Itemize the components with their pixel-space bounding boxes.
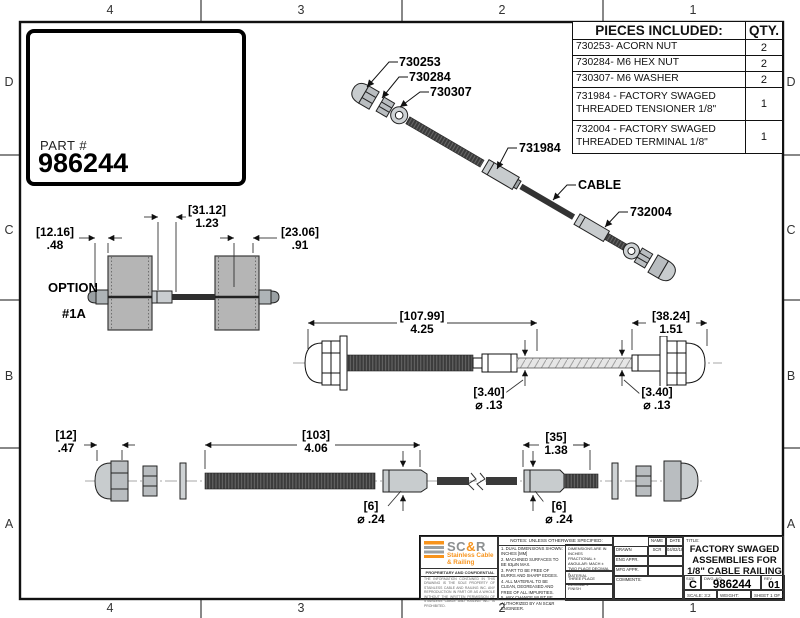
zone-right-b: B [787, 369, 795, 383]
zone-left-a: A [5, 517, 13, 531]
mfg-appr-label: MFG APPR. [614, 566, 648, 576]
note-item: 5. ANY CHANGE MUST BE AUTHORIZED BY AN S… [501, 595, 563, 611]
zone-bottom-3: 3 [298, 601, 305, 615]
finish-label: FINISH [566, 585, 613, 592]
mfg-appr-value [648, 566, 684, 576]
pieces-included-table: PIECES INCLUDED: QTY. 730253- ACORN NUT … [572, 21, 783, 154]
tolerance-line: DIMENSIONS ARE IN INCHES [568, 546, 611, 556]
callout-tensioner: 731984 [519, 141, 561, 155]
callout-washer: 730307 [430, 85, 472, 99]
zone-top-4: 4 [107, 3, 114, 17]
row-desc: 730307- M6 WASHER [573, 72, 746, 88]
sheet-cell: SHEET 1 OF 1 [751, 590, 785, 601]
row-qty: 2 [745, 40, 782, 56]
table-row: 730307- M6 WASHER 2 [573, 72, 783, 88]
comments-cell: COMMENTS: [614, 576, 684, 601]
notes-list: 1. DUAL DIMENSIONS SHOWN: INCHES [MM] 2.… [501, 546, 563, 611]
zone-right-d: D [786, 75, 795, 89]
row-desc: 731984 - FACTORY SWAGED THREADED TENSION… [573, 88, 746, 121]
part-number-value: 986244 [38, 148, 128, 179]
bottom-exploded-view [85, 461, 702, 501]
approvals-cell: NAME DATE DRAWN SCR 04/02/18 ENG APPR. M… [613, 536, 683, 600]
weight-cell: WEIGHT: [717, 590, 751, 601]
notes-cell: NOTES: UNLESS OTHERWISE SPECIFIED: 1. DU… [498, 536, 613, 600]
dim-mid-right: [38.24]1.51 [650, 310, 692, 336]
name-header: NAME [648, 537, 666, 546]
table-row: 731984 - FACTORY SWAGED THREADED TENSION… [573, 88, 783, 121]
dim-bottom-dia-left: [6]⌀ .24 [355, 500, 386, 526]
callout-cable: CABLE [578, 178, 621, 192]
zone-left-c: C [4, 223, 13, 237]
dim-option-right: [23.06].91 [279, 226, 321, 252]
dim-mid-length: [107.99]4.25 [398, 310, 447, 336]
dim-bottom-right: [35]1.38 [542, 431, 569, 457]
zone-top-3: 3 [298, 3, 305, 17]
callout-acorn-nut: 730253 [399, 55, 441, 69]
dim-mid-cable-dia-right: [3.40]⌀ .13 [639, 386, 674, 412]
table-row: 732004 - FACTORY SWAGED THREADED TERMINA… [573, 121, 783, 154]
drawing-title: FACTORY SWAGED ASSEMBLIES FOR 1/8" CABLE… [684, 544, 785, 578]
drawn-date: 04/02/18 [666, 546, 684, 556]
table-header-desc: PIECES INCLUDED: [573, 22, 746, 40]
dim-option-left: [12.16].48 [34, 226, 76, 252]
zone-top-1: 1 [690, 3, 697, 17]
table-header-qty: QTY. [745, 22, 782, 40]
note-item: 1. DUAL DIMENSIONS SHOWN: INCHES [MM] [501, 546, 563, 557]
size-cell: SIZE C [684, 575, 701, 590]
option-1a-view [88, 256, 279, 330]
zone-bottom-4: 4 [107, 601, 114, 615]
option-label-line2: #1A [62, 306, 86, 321]
material-cell: MATERIAL [565, 571, 614, 584]
tolerance-cell: DIMENSIONS ARE IN INCHES FRACTIONAL ± AN… [565, 544, 614, 571]
date-header: DATE [666, 537, 684, 546]
finish-cell: FINISH [565, 584, 614, 601]
row-qty: 1 [745, 88, 782, 121]
dim-mid-cable-dia-left: [3.40]⌀ .13 [471, 386, 506, 412]
eng-appr-value [648, 556, 684, 566]
tensioner-assembly-view [293, 336, 722, 390]
zone-left-b: B [5, 369, 13, 383]
row-qty: 1 [745, 121, 782, 154]
proprietary-fine-print: THE INFORMATION CONTAINED IN THIS DRAWIN… [424, 577, 495, 608]
material-label: MATERIAL [566, 572, 613, 579]
scr-logo-icon [424, 541, 444, 558]
zone-left-d: D [4, 75, 13, 89]
table-row: 730253- ACORN NUT 2 [573, 40, 783, 56]
table-header-row: PIECES INCLUDED: QTY. [573, 22, 783, 40]
note-item: 3. PART TO BE FREE OF BURRS AND SHARP ED… [501, 568, 563, 579]
rev-cell: REV 01 [761, 575, 785, 590]
scale-cell: SCALE: 3:2 [684, 590, 717, 601]
drawn-name: SCR [648, 546, 666, 556]
dim-bottom-left: [12].47 [53, 429, 78, 455]
note-item: 4. ALL MATERIAL TO BE CLEAN, DEGREASED A… [501, 579, 563, 595]
zone-right-a: A [787, 517, 795, 531]
option-label-line1: OPTION [48, 280, 98, 295]
callout-hex-nut: 730284 [409, 70, 451, 84]
proprietary-label: PROPRIETARY AND CONFIDENTIAL [421, 568, 499, 577]
row-desc: 730253- ACORN NUT [573, 40, 746, 56]
title-cell: TITLE: FACTORY SWAGED ASSEMBLIES FOR 1/8… [683, 536, 784, 600]
dim-option-mid: [31.12]1.23 [186, 204, 228, 230]
logo-cell: SC&R Stainless Cable & Railing PROPRIETA… [420, 536, 498, 600]
title-block: SC&R Stainless Cable & Railing PROPRIETA… [419, 535, 783, 599]
dim-bottom-dia-right: [6]⌀ .24 [543, 500, 574, 526]
note-item: 2. MACHINED SURFACES TO BE 63µIN MAX. [501, 557, 563, 568]
zone-top-2: 2 [499, 3, 506, 17]
drawing-sheet: 4 3 2 1 4 3 2 1 D C B A D C B A PART # 9… [0, 0, 800, 618]
zone-right-c: C [786, 223, 795, 237]
logo-subtitle-2: & Railing [447, 559, 474, 566]
drawn-label: DRAWN [614, 546, 648, 556]
row-qty: 2 [745, 72, 782, 88]
callout-terminal: 732004 [630, 205, 672, 219]
row-desc: 732004 - FACTORY SWAGED THREADED TERMINA… [573, 121, 746, 154]
table-row: 730284- M6 HEX NUT 2 [573, 56, 783, 72]
eng-appr-label: ENG APPR. [614, 556, 648, 566]
row-qty: 2 [745, 56, 782, 72]
dwg-no-cell: DWG. NO. 986244 [701, 575, 761, 590]
title-label: TITLE: [686, 538, 700, 543]
row-desc: 730284- M6 HEX NUT [573, 56, 746, 72]
zone-bottom-1: 1 [690, 601, 697, 615]
dim-bottom-length: [103]4.06 [300, 429, 332, 455]
part-number-box: PART # 986244 [26, 29, 246, 186]
